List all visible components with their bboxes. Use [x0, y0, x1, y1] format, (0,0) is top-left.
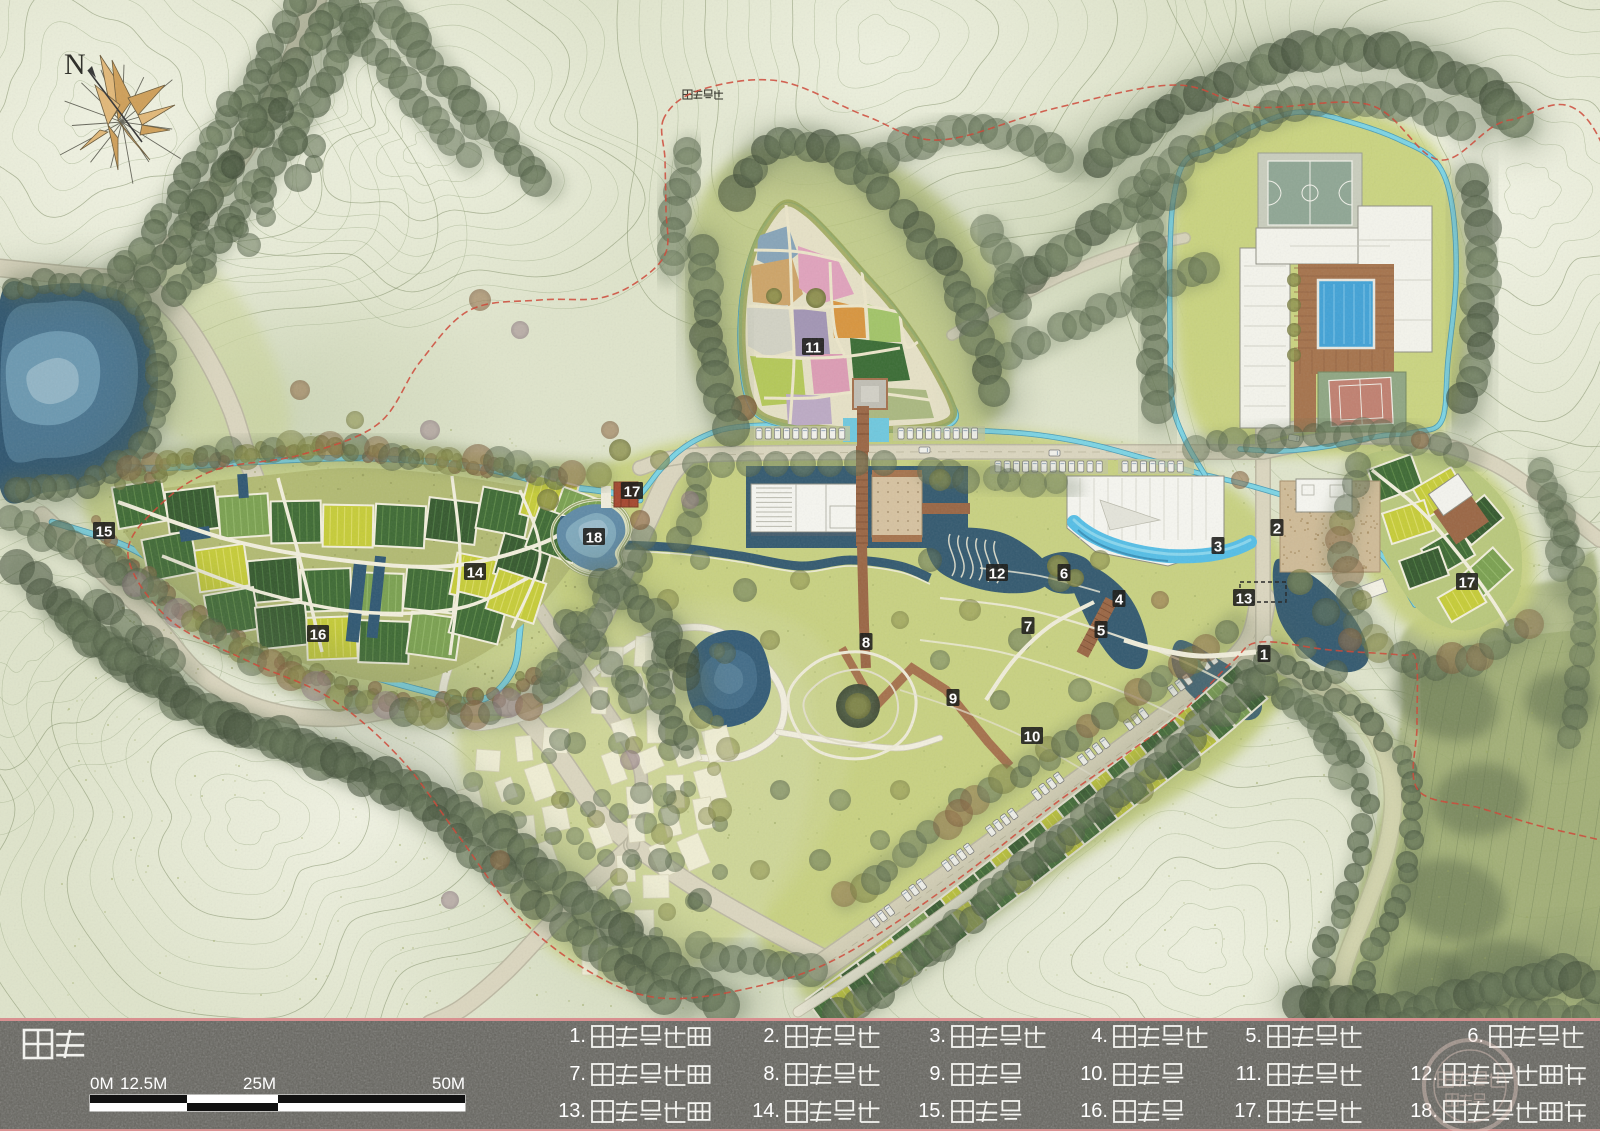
svg-text:14.: 14. — [752, 1100, 780, 1122]
svg-text:12.5M: 12.5M — [120, 1074, 167, 1093]
svg-text:9.: 9. — [929, 1063, 946, 1085]
svg-text:4.: 4. — [1091, 1025, 1108, 1047]
svg-text:6.: 6. — [1467, 1025, 1484, 1047]
svg-text:7.: 7. — [569, 1063, 586, 1085]
svg-text:13.: 13. — [558, 1100, 586, 1122]
svg-text:25M: 25M — [243, 1074, 276, 1093]
svg-text:10.: 10. — [1080, 1063, 1108, 1085]
svg-text:3.: 3. — [929, 1025, 946, 1047]
svg-text:2.: 2. — [763, 1025, 780, 1047]
svg-text:16.: 16. — [1080, 1100, 1108, 1122]
svg-text:8.: 8. — [763, 1063, 780, 1085]
svg-text:11.: 11. — [1236, 1063, 1262, 1085]
svg-text:1.: 1. — [569, 1025, 586, 1047]
svg-text:5.: 5. — [1245, 1025, 1262, 1047]
svg-text:18.: 18. — [1410, 1100, 1438, 1122]
svg-text:15.: 15. — [918, 1100, 946, 1122]
svg-text:17.: 17. — [1234, 1100, 1262, 1122]
svg-text:50M: 50M — [432, 1074, 465, 1093]
svg-text:0M: 0M — [90, 1074, 114, 1093]
